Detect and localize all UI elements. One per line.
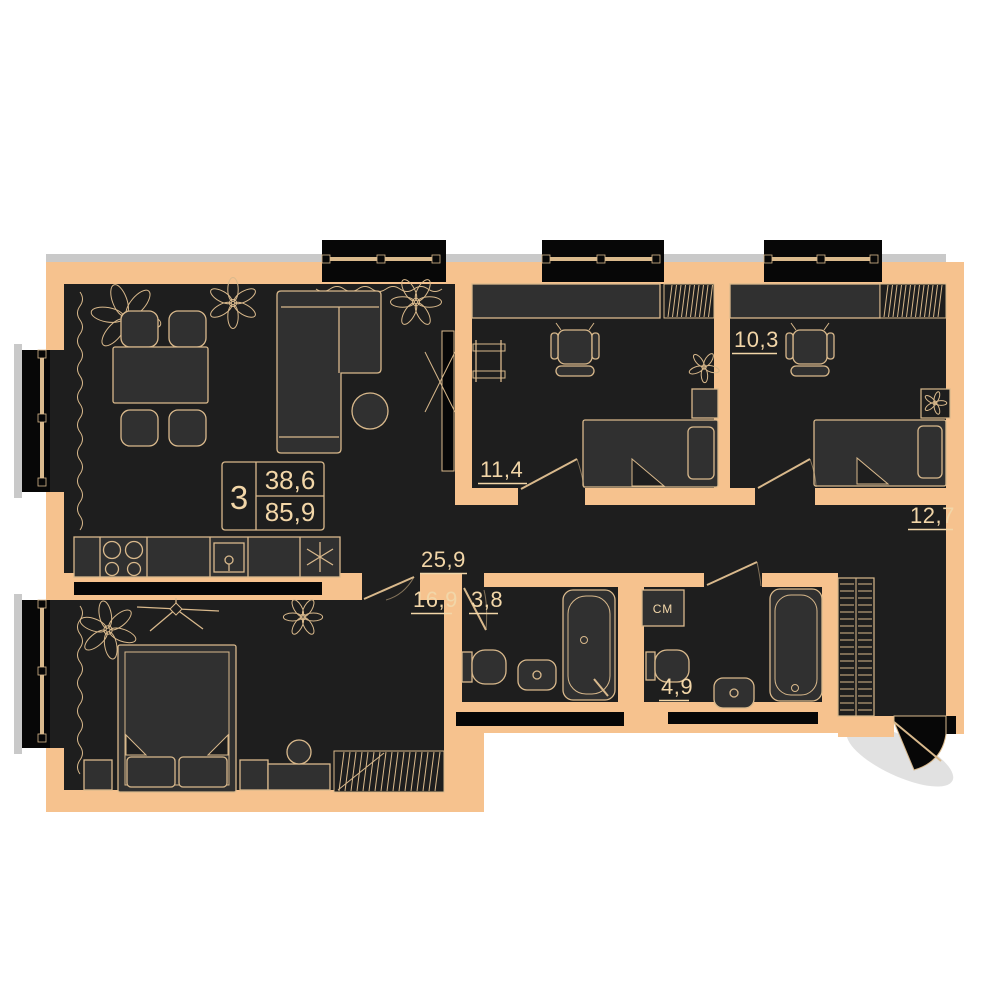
wardrobe-icon — [334, 751, 444, 792]
wardrobe-icon — [664, 284, 714, 318]
coffee-table-icon — [352, 393, 388, 429]
single-bed-icon — [583, 420, 718, 487]
toilet-icon — [462, 650, 506, 684]
floor-plan-page: 25,9 — [0, 0, 1000, 1000]
desk-icon — [730, 284, 880, 318]
double-bed-icon — [118, 645, 236, 792]
nightstand-icon — [692, 389, 718, 418]
single-bed-icon — [814, 420, 946, 486]
wardrobe-icon — [880, 284, 946, 318]
window-icon — [22, 350, 50, 492]
room-label-bathroom-1: 3,8 — [469, 587, 503, 614]
living-area: 38,6 — [265, 465, 316, 495]
dresser-icon — [268, 764, 330, 790]
svg-text:25,9: 25,9 — [421, 547, 466, 572]
svg-text:3,8: 3,8 — [471, 587, 503, 612]
svg-text:4,9: 4,9 — [661, 674, 693, 699]
total-area: 85,9 — [265, 497, 316, 527]
window-icon — [22, 600, 50, 748]
sink-icon — [518, 660, 556, 690]
window-icon — [764, 240, 882, 282]
nightstand-icon — [84, 760, 112, 790]
kitchen-counter — [74, 537, 340, 577]
room-label-hallway: 12,7 — [908, 503, 955, 530]
rooms-count: 3 — [230, 479, 248, 516]
bathtub-icon — [563, 590, 615, 700]
window-icon — [322, 240, 446, 282]
svg-text:16,9: 16,9 — [413, 587, 458, 612]
pouf-icon — [287, 740, 311, 764]
svg-text:10,3: 10,3 — [734, 327, 779, 352]
nightstand-icon — [240, 760, 268, 790]
desk-icon — [472, 284, 660, 318]
svg-text:11,4: 11,4 — [480, 457, 523, 482]
svg-text:СМ: СМ — [653, 602, 674, 616]
room-label-bathroom-2: 4,9 — [659, 674, 693, 701]
window-icon — [542, 240, 664, 282]
room-label-bedroom-3: 10,3 — [732, 327, 779, 354]
svg-text:12,7: 12,7 — [910, 503, 955, 528]
flower-box-icon — [921, 389, 950, 418]
bathtub-icon — [770, 589, 822, 701]
floor-plan: 25,9 — [0, 0, 1000, 1000]
room-label-living-kitchen: 25,9 — [420, 547, 467, 574]
room-label-master-bedroom: 16,9 — [411, 587, 458, 614]
room-label-bedroom-2: 11,4 — [478, 457, 527, 484]
shoe-rack-icon — [838, 578, 874, 716]
washing-machine-icon: СМ — [642, 590, 684, 626]
sink-icon — [714, 678, 754, 708]
